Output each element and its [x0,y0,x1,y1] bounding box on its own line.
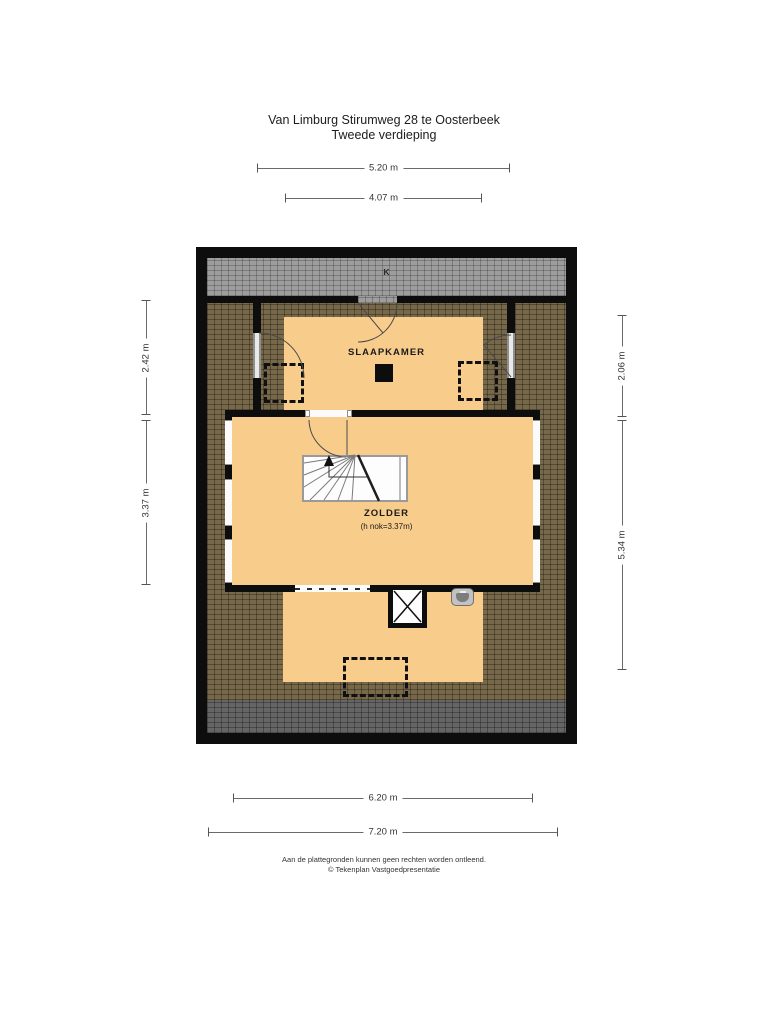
floor-plan-inner: K SLAAPKAMER [207,258,566,733]
dimension-label: 5.34 m [617,525,628,564]
dimension-tick [509,164,510,173]
roof-flat-top: K [207,258,566,296]
dimension-label: 4.07 m [364,193,403,204]
dimension-tick [557,828,558,837]
dimension-tick [532,794,533,803]
footer-disclaimer: Aan de plattegronden kunnen geen rechten… [0,855,768,865]
dimension-left-upper: 2.42 m [137,300,155,415]
window-zolder-left-3 [225,539,232,583]
passage-dash-line [295,588,370,590]
dimension-label: 2.42 m [141,338,152,377]
sink-bowl [456,593,469,602]
dimension-tick [142,414,151,415]
dimension-tick [481,194,482,203]
dimension-top-inner: 4.07 m [285,192,482,204]
dimension-tick [618,416,627,417]
dimension-label: 3.37 m [141,483,152,522]
dimension-left-lower: 3.37 m [137,420,155,585]
page-title: Van Limburg Stirumweg 28 te Oosterbeek T… [0,113,768,143]
window-zolder-right-3 [533,539,540,583]
dimension-tick [233,794,234,803]
dimension-right-lower: 5.34 m [613,420,631,670]
footer-credit: © Tekenplan Vastgoedpresentatie [0,865,768,875]
dimension-tick [285,194,286,203]
dimension-tick [257,164,258,173]
closet-dashed-right [458,361,498,401]
shaft-x-marker [388,585,427,628]
dimension-right-upper: 2.06 m [613,315,631,417]
room-zolder-height-note: (h nok=3.37m) [207,522,566,531]
door-post [305,410,310,417]
dimension-label: 6.20 m [363,793,402,804]
dimension-top-outer: 5.20 m [257,162,510,174]
dimension-label: 5.20 m [364,163,403,174]
sink-icon [451,588,474,606]
dimension-tick [142,300,151,301]
dimension-label: 2.06 m [617,346,628,385]
dimension-tick [618,420,627,421]
roof-flat-bottom [207,700,566,733]
closet-dashed-left [264,363,304,403]
door-post [347,410,352,417]
dimension-bottom-outer: 7.20 m [208,826,558,838]
door-opening-top [358,296,397,303]
footer: Aan de plattegronden kunnen geen rechten… [0,855,768,875]
page-title-line2: Tweede verdieping [0,128,768,143]
dimension-tick [142,420,151,421]
dimension-tick [208,828,209,837]
chimney-marker [375,364,393,382]
page-title-line1: Van Limburg Stirumweg 28 te Oosterbeek [0,113,768,128]
dimension-bottom-inner: 6.20 m [233,792,533,804]
dimension-tick [618,315,627,316]
stairs [302,455,408,502]
passage-opening-zolder [295,585,370,592]
closet-dashed-bottom [343,657,408,697]
dimension-tick [618,669,627,670]
floorplan-page: { "header": { "title_line1": "Van Limbur… [0,0,768,1024]
room-slaapkamer-label: SLAAPKAMER [207,347,566,358]
dimension-tick [142,584,151,585]
door-opening-zolder [305,410,352,417]
roof-window-label: K [207,267,566,277]
window-zolder-right-1 [533,420,540,465]
floor-plan: K SLAAPKAMER [196,247,577,744]
window-zolder-left-1 [225,420,232,465]
room-zolder-label: ZOLDER [207,508,566,519]
dimension-label: 7.20 m [363,827,402,838]
